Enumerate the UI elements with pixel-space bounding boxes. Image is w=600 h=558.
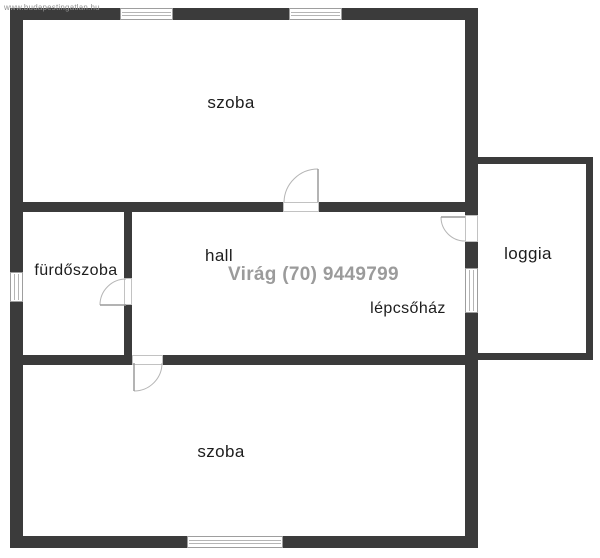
- szoba-hall-wall-left: [23, 202, 283, 212]
- window-icon-bottom: [187, 536, 283, 548]
- door-leaf-hall-loggia: [465, 215, 478, 242]
- szoba-hall-wall-right: [319, 202, 465, 212]
- room-label-lepcsohaz: lépcsőház: [370, 300, 446, 318]
- window-icon-top-left: [120, 8, 173, 20]
- right-wall-upper: [465, 8, 478, 215]
- bottom-wall-segment-left: [10, 536, 187, 548]
- room-label-hall: hall: [205, 246, 233, 266]
- room-label-szoba-bottom: szoba: [197, 442, 244, 462]
- left-wall-upper: [10, 8, 23, 272]
- loggia-bottom-wall: [478, 353, 593, 360]
- right-wall-lower: [465, 313, 478, 548]
- window-icon-staircase: [465, 268, 478, 313]
- loggia-right-wall: [586, 157, 593, 360]
- hall-bottom-wall-right: [163, 355, 465, 365]
- loggia-top-wall: [478, 157, 593, 164]
- window-icon-top-right: [289, 8, 342, 20]
- door-gap-entrance: [132, 355, 163, 365]
- top-wall-segment-right: [342, 8, 478, 20]
- bottom-wall-segment-right: [283, 536, 478, 548]
- room-label-loggia: loggia: [504, 244, 552, 264]
- door-gap-szoba-hall: [283, 202, 319, 212]
- bathroom-wall-upper: [124, 212, 132, 278]
- room-label-szoba-top: szoba: [207, 93, 254, 113]
- agent-phone-watermark: Virág (70) 9449799: [228, 264, 399, 286]
- right-wall-between-door-window: [465, 242, 478, 268]
- door-gap-bathroom: [124, 278, 132, 305]
- hall-bottom-wall-left: [23, 355, 132, 365]
- window-icon-bathroom: [10, 272, 23, 302]
- site-watermark: www.budapestingatlan.hu: [4, 3, 100, 12]
- top-wall-segment-middle: [173, 8, 289, 20]
- left-wall-lower: [10, 302, 23, 548]
- floor-plan: szoba hall fürdőszoba lépcsőház loggia s…: [0, 0, 600, 558]
- room-label-furdoszoba: fürdőszoba: [34, 262, 117, 280]
- bathroom-wall-lower: [124, 305, 132, 355]
